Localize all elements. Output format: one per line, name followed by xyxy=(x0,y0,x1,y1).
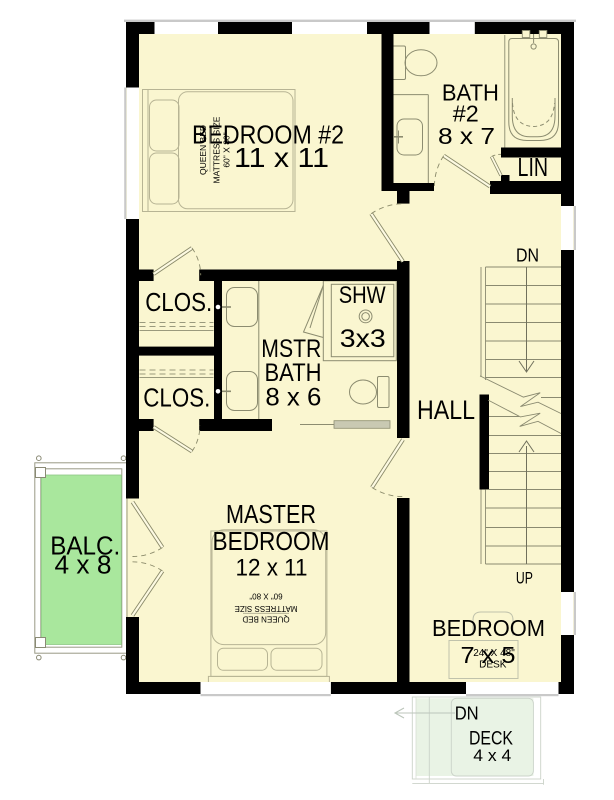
svg-text:QUEEN BED: QUEEN BED xyxy=(198,125,208,175)
svg-text:24" X 48": 24" X 48" xyxy=(473,648,515,659)
svg-text:60" X 80": 60" X 80" xyxy=(222,132,232,167)
svg-text:CLOS.: CLOS. xyxy=(143,385,210,413)
svg-text:UP: UP xyxy=(516,569,533,588)
svg-text:4 x 4: 4 x 4 xyxy=(473,746,511,765)
svg-text:QUEEN BED: QUEEN BED xyxy=(242,615,289,624)
svg-text:DN: DN xyxy=(516,246,539,267)
svg-text:60" X 80": 60" X 80" xyxy=(249,592,282,601)
svg-text:DESK: DESK xyxy=(479,660,507,671)
svg-text:4 x 8: 4 x 8 xyxy=(55,552,112,580)
svg-text:HALL: HALL xyxy=(417,395,475,425)
svg-text:MATTRESS SIZE: MATTRESS SIZE xyxy=(212,116,222,183)
svg-text:8 x 7: 8 x 7 xyxy=(438,123,495,149)
svg-text:DN: DN xyxy=(455,703,479,724)
svg-text:8 x 6: 8 x 6 xyxy=(265,384,321,412)
svg-text:MATTRESS SIZE: MATTRESS SIZE xyxy=(235,604,298,613)
svg-text:11 x 11: 11 x 11 xyxy=(234,142,329,173)
svg-text:LIN: LIN xyxy=(518,154,549,182)
svg-text:CLOS.: CLOS. xyxy=(145,289,212,317)
svg-text:BEDROOM: BEDROOM xyxy=(213,528,330,556)
svg-text:3x3: 3x3 xyxy=(340,325,386,353)
svg-text:MASTER: MASTER xyxy=(226,501,316,529)
svg-text:BEDROOM: BEDROOM xyxy=(432,615,545,641)
svg-text:12 x 11: 12 x 11 xyxy=(236,555,308,582)
svg-text:SHW: SHW xyxy=(339,282,386,309)
